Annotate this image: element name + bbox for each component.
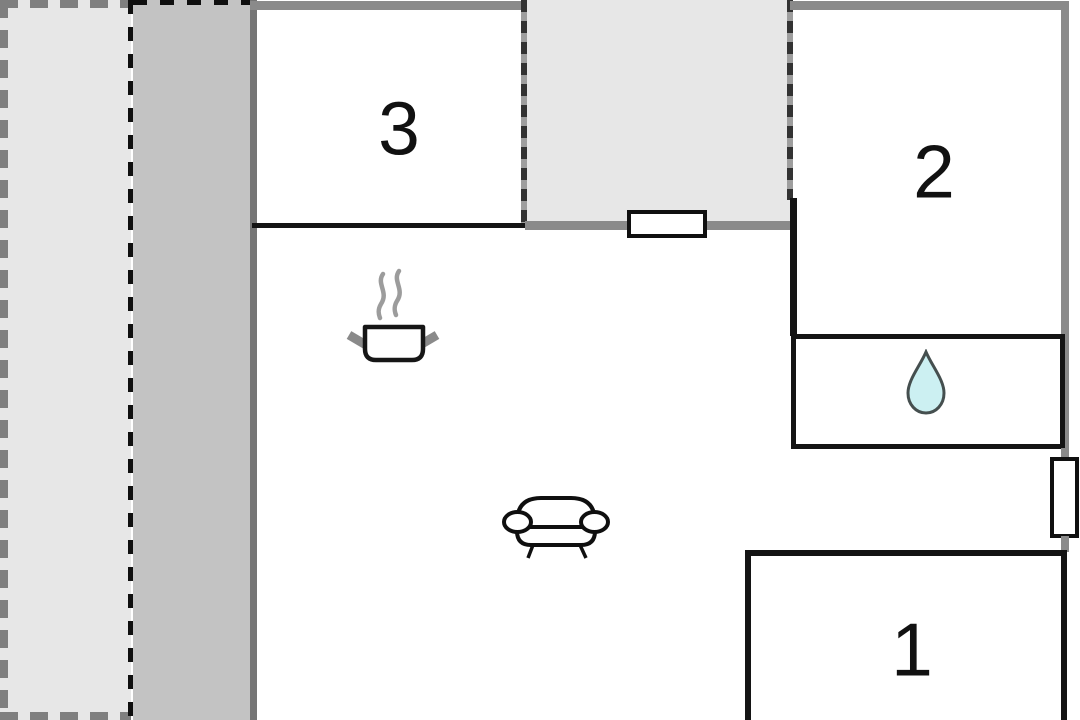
right-wall-window — [1050, 457, 1079, 538]
exterior-wall-left — [250, 0, 257, 720]
terrace-area — [527, 0, 790, 222]
sofa-leg-right — [580, 545, 586, 558]
balcony-area-left — [0, 0, 131, 720]
room2-label: 2 — [913, 135, 955, 210]
cooking-pot-icon — [338, 262, 442, 366]
strip-divider-dashed-line — [128, 0, 133, 720]
shaded-strip-area — [133, 0, 250, 720]
pot-body — [365, 327, 423, 360]
room3-label: 3 — [378, 92, 420, 167]
floor-plan-canvas: 3 2 1 — [0, 0, 1080, 720]
room1-label: 1 — [891, 613, 933, 688]
room3-wall-bottom — [252, 223, 545, 228]
sofa-armrest-right — [581, 512, 608, 532]
steam-line — [395, 271, 400, 315]
terrace-right-dashed-boundary — [787, 0, 793, 200]
room3-wall-top — [250, 1, 527, 10]
strip-border-top-dashed — [133, 0, 250, 5]
balcony-border-bottom — [0, 712, 131, 720]
sofa-leg-left — [528, 545, 533, 558]
sofa-armrest-left — [504, 512, 531, 532]
balcony-border-top — [0, 0, 131, 8]
room2-wall-left — [790, 198, 797, 336]
sofa-icon — [498, 494, 614, 562]
room2-wall-top — [790, 1, 1069, 10]
steam-line — [379, 274, 384, 318]
balcony-border-left — [0, 0, 8, 720]
water-drop-icon — [904, 349, 948, 417]
terrace-window — [627, 210, 707, 238]
